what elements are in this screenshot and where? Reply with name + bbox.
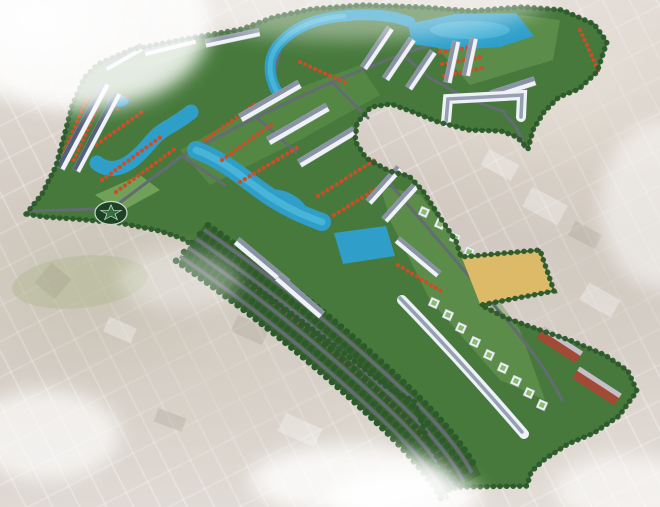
ghost-building [522,187,568,225]
cloud-wisp [120,250,240,310]
star-roundabout [95,202,127,225]
ghost-building [568,221,602,249]
ghost-building [154,408,187,431]
ghost-building [278,413,323,448]
west-road [30,209,96,211]
ghost-building [103,317,137,344]
flower-bed [116,107,119,110]
ghost-building [481,149,519,181]
ghost-building [579,282,620,317]
masterplan-render [0,0,660,507]
